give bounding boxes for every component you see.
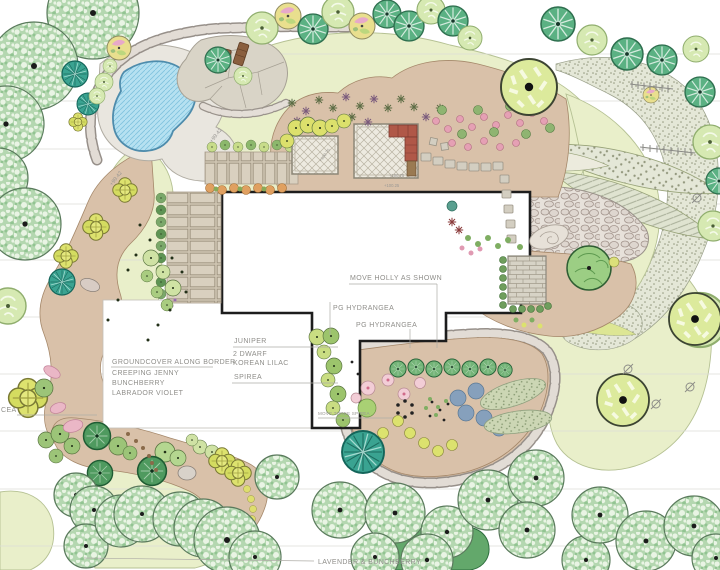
label-text: CREEPING JENNY bbox=[112, 370, 179, 377]
landscape-plan-page: GROUNDCOVER ALONG BORDER CREEPING JENNY … bbox=[0, 0, 720, 570]
flagstone-patio bbox=[177, 36, 287, 112]
elevation-label: +100.75 bbox=[389, 173, 405, 178]
label-text: PG HYDRANGEA bbox=[356, 322, 417, 329]
label-text: JUNIPER bbox=[234, 338, 267, 345]
teal-pinwheel-tree bbox=[342, 431, 384, 473]
walkway-north bbox=[205, 152, 298, 184]
label-text: BUNCHBERRY bbox=[112, 380, 165, 387]
label-text: LABRADOR VIOLET bbox=[112, 390, 184, 397]
label-text: CEA bbox=[1, 407, 17, 414]
label-text: KOREAN LILAC bbox=[233, 360, 289, 367]
label-text: LAVENDER & BUNCHBERRY bbox=[318, 559, 421, 566]
large-yellow-tree bbox=[501, 59, 557, 115]
label-text: MOVE THREE SPIREA bbox=[318, 411, 371, 416]
patio-hatched-1 bbox=[292, 136, 338, 174]
grill bbox=[407, 161, 416, 176]
label-text: PG HYDRANGEA bbox=[333, 305, 394, 312]
landscape-plan-canvas: GROUNDCOVER ALONG BORDER CREEPING JENNY … bbox=[0, 0, 720, 570]
label-text: 2 DWARF bbox=[233, 351, 267, 358]
label-text: SPIREA bbox=[234, 374, 262, 381]
label-text: MOVE HOLLY AS SHOWN bbox=[350, 275, 442, 282]
label-text: GROUNDCOVER ALONG BORDER bbox=[112, 359, 236, 366]
elevation-label: +100.25 bbox=[384, 183, 400, 188]
boulder bbox=[178, 466, 196, 480]
